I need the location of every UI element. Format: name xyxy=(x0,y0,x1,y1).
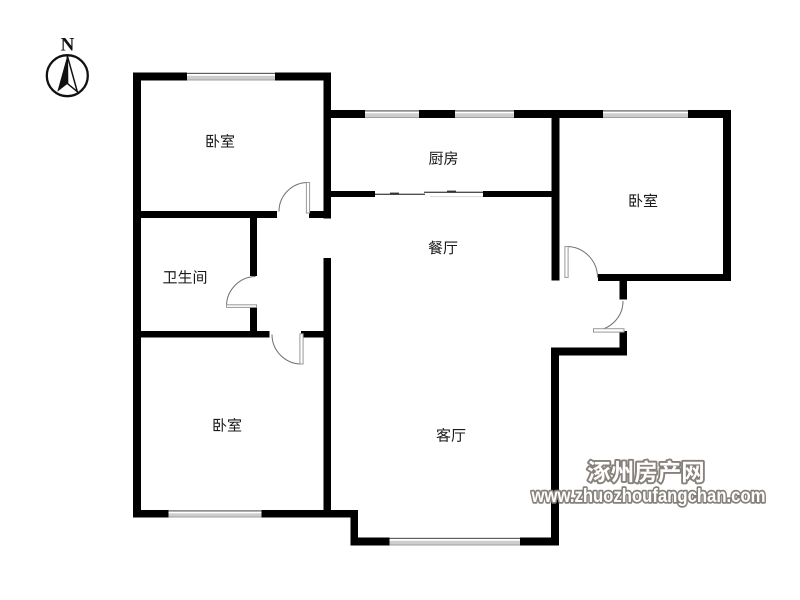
svg-text:www.zhuozhoufangchan.com: www.zhuozhoufangchan.com xyxy=(531,486,766,507)
svg-text:N: N xyxy=(61,35,75,56)
